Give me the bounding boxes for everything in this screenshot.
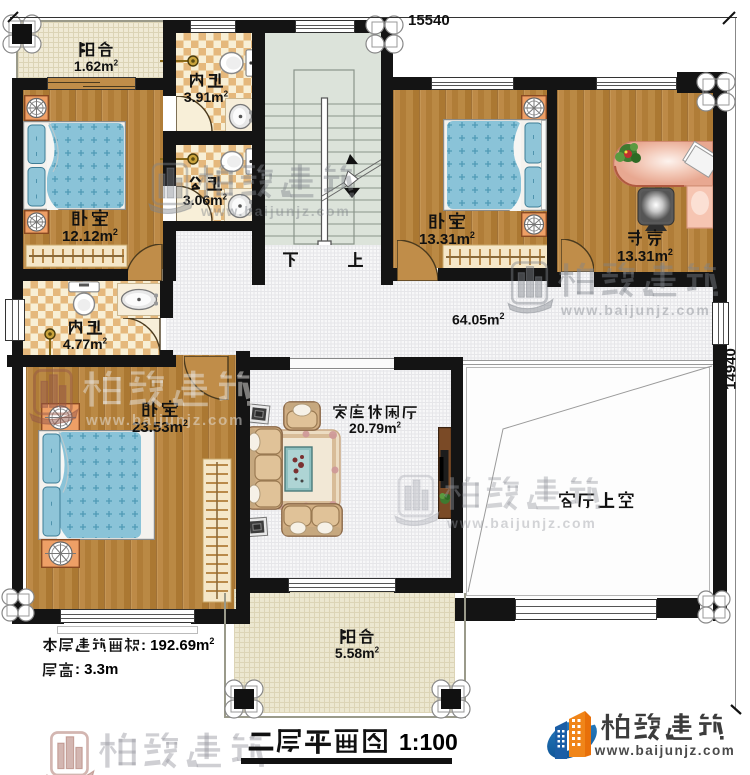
- svg-text:14940: 14940: [723, 348, 740, 390]
